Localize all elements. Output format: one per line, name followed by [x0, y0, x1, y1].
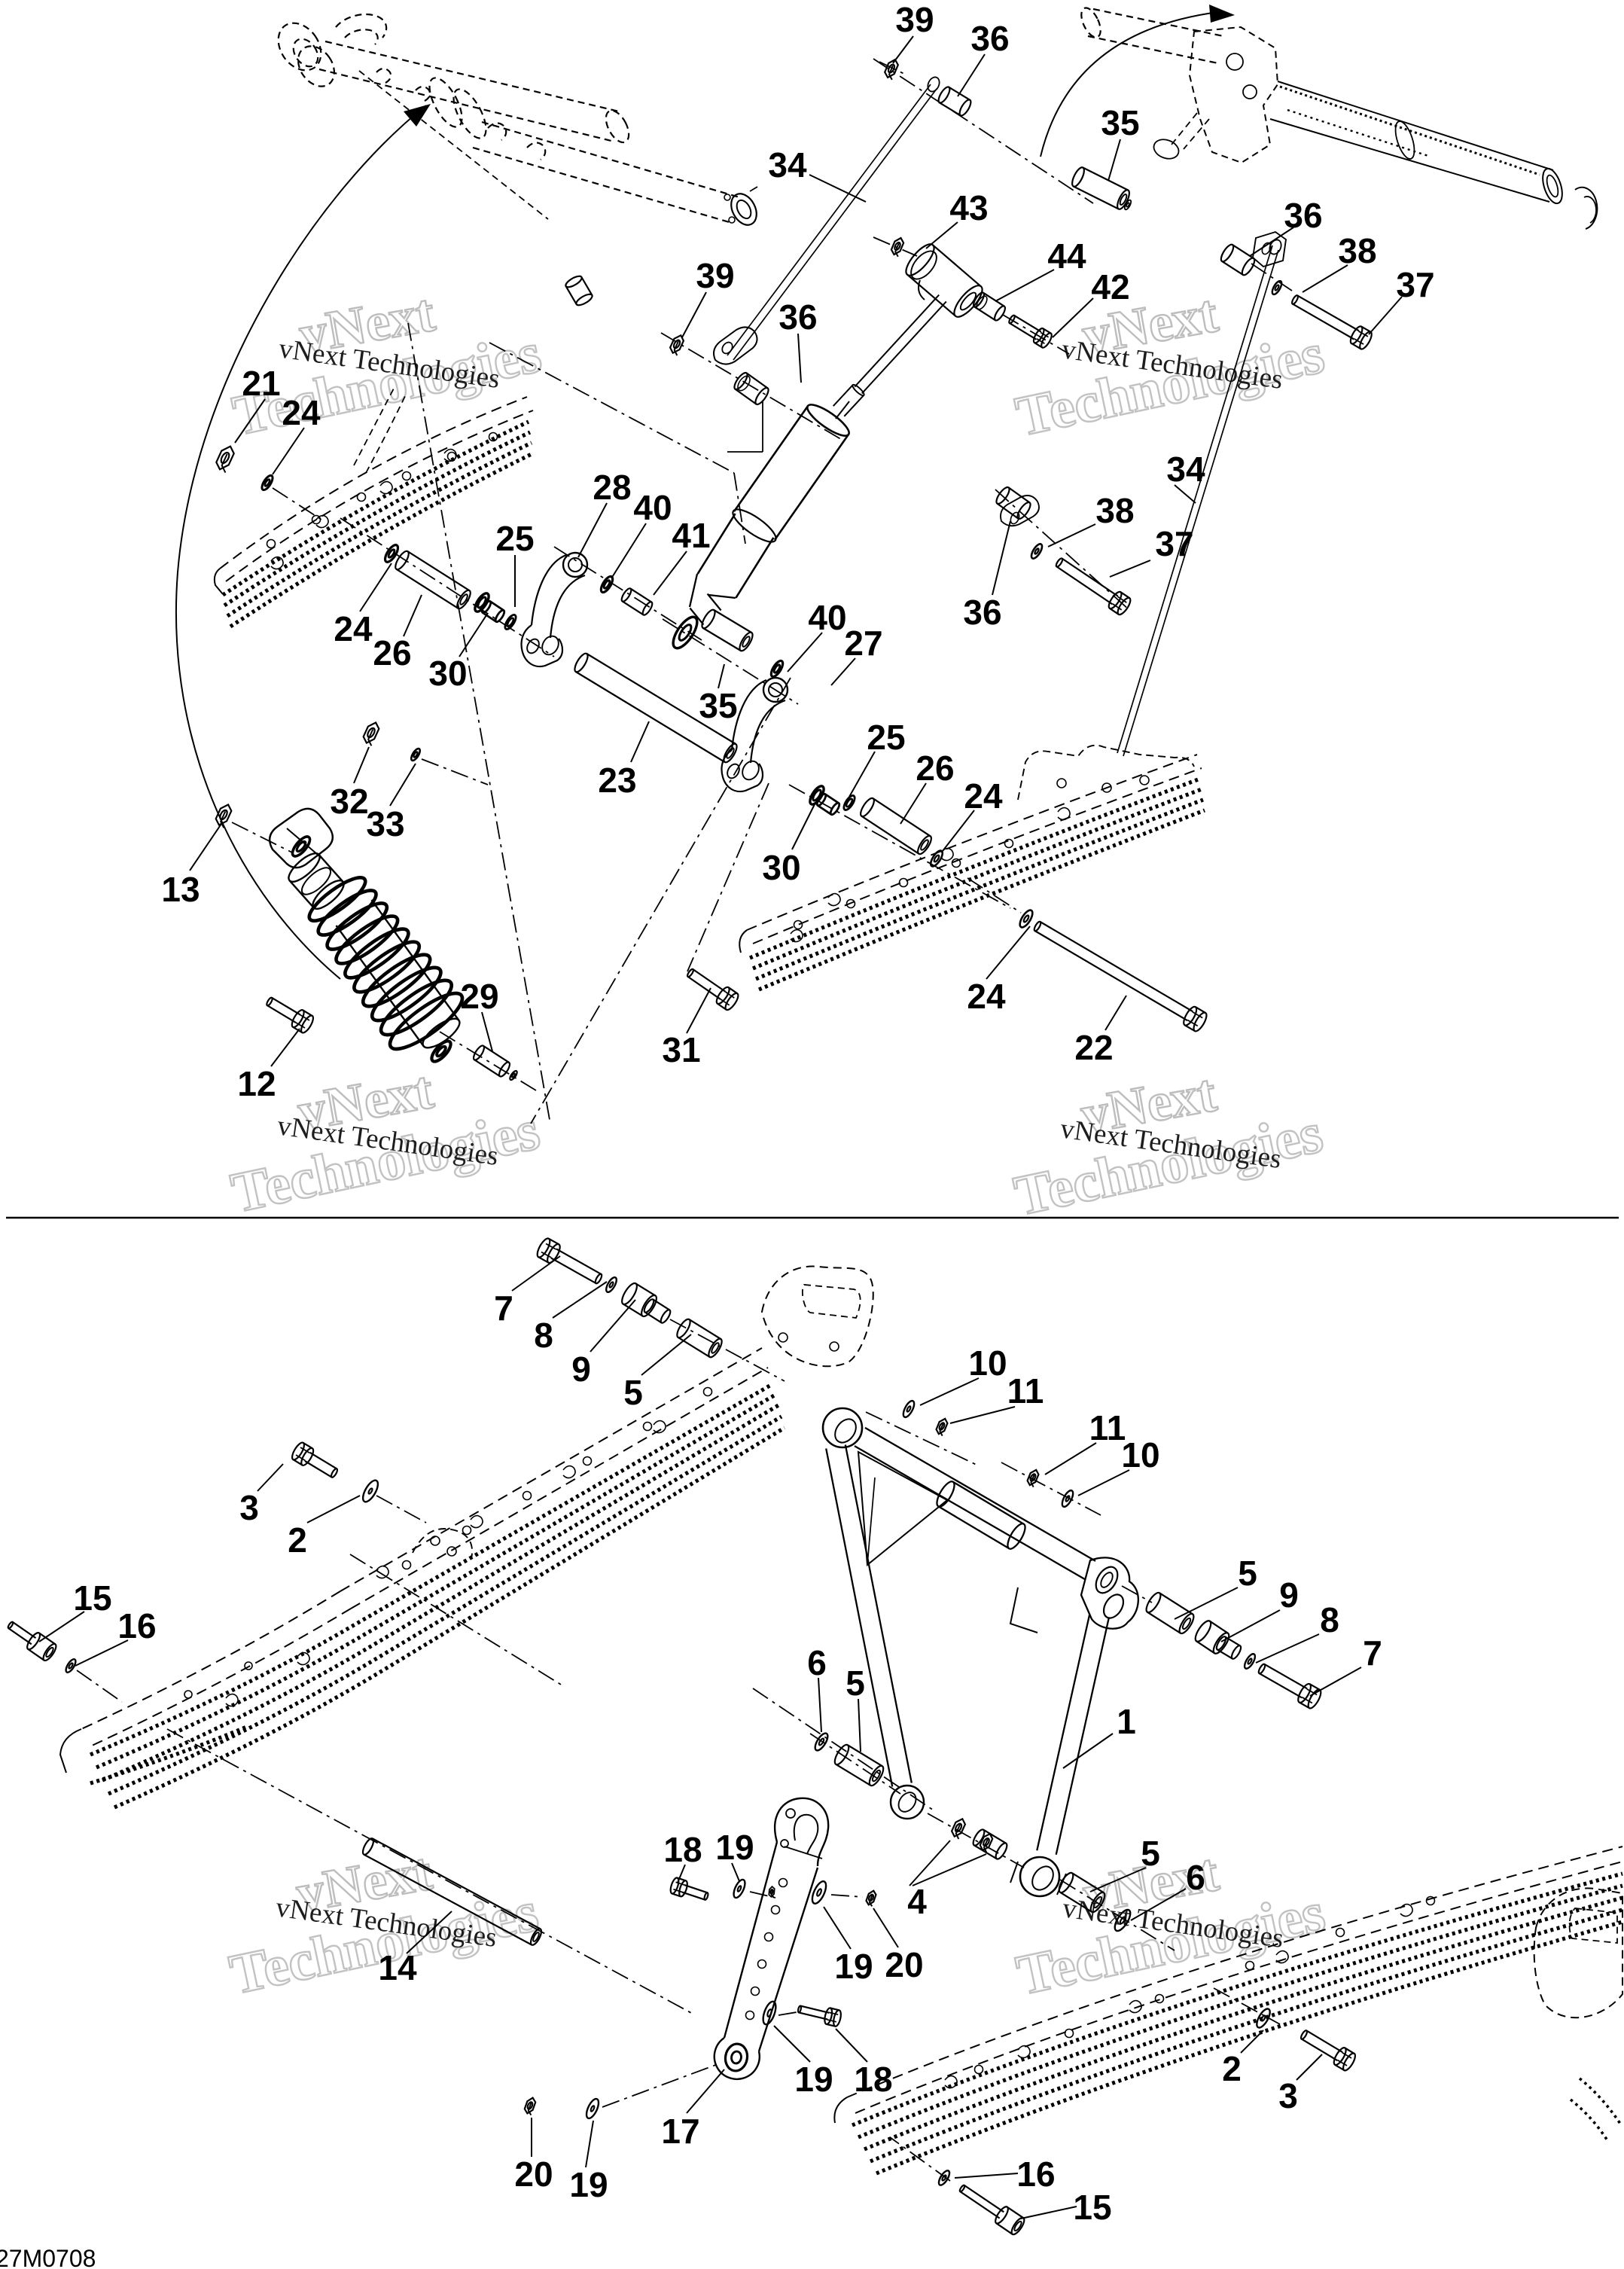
svg-text:5: 5: [1238, 1554, 1257, 1593]
svg-text:17: 17: [661, 2112, 699, 2151]
svg-text:5: 5: [1141, 1834, 1160, 1873]
svg-text:36: 36: [970, 19, 1009, 58]
svg-text:18: 18: [854, 2060, 892, 2099]
svg-text:30: 30: [762, 848, 800, 887]
svg-text:11: 11: [1007, 1371, 1044, 1411]
svg-text:36: 36: [778, 297, 817, 337]
svg-text:9: 9: [1279, 1575, 1299, 1615]
svg-text:9: 9: [571, 1350, 591, 1389]
svg-text:10: 10: [968, 1343, 1007, 1383]
svg-text:26: 26: [373, 633, 411, 672]
svg-text:27M0708: 27M0708: [0, 2245, 96, 2269]
svg-text:12: 12: [237, 1064, 276, 1103]
svg-text:19: 19: [834, 1947, 873, 1986]
svg-text:26: 26: [916, 749, 954, 788]
svg-text:16: 16: [1016, 2155, 1055, 2194]
svg-text:33: 33: [366, 804, 404, 843]
svg-text:7: 7: [494, 1289, 513, 1328]
svg-text:11: 11: [1089, 1408, 1126, 1447]
svg-text:2: 2: [288, 1520, 307, 1560]
svg-text:34: 34: [768, 145, 807, 185]
svg-text:27: 27: [844, 624, 882, 663]
svg-text:25: 25: [867, 718, 905, 757]
svg-text:20: 20: [885, 1945, 923, 1984]
svg-text:35: 35: [699, 686, 737, 725]
svg-text:8: 8: [534, 1316, 553, 1355]
svg-text:39: 39: [895, 0, 934, 39]
svg-text:7: 7: [1363, 1633, 1382, 1673]
svg-text:10: 10: [1121, 1435, 1159, 1475]
svg-text:6: 6: [807, 1643, 827, 1682]
svg-text:2: 2: [1222, 2049, 1242, 2088]
svg-text:19: 19: [794, 2060, 833, 2099]
svg-text:15: 15: [73, 1578, 111, 1618]
svg-text:23: 23: [598, 761, 636, 800]
svg-text:38: 38: [1338, 231, 1376, 270]
svg-text:13: 13: [161, 870, 200, 909]
svg-text:42: 42: [1091, 267, 1129, 306]
svg-text:40: 40: [808, 598, 846, 637]
svg-text:16: 16: [117, 1606, 156, 1645]
svg-text:5: 5: [623, 1373, 643, 1412]
svg-text:36: 36: [963, 593, 1001, 632]
svg-text:15: 15: [1073, 2188, 1111, 2227]
svg-text:19: 19: [569, 2165, 608, 2204]
svg-text:3: 3: [1278, 2076, 1298, 2115]
svg-text:24: 24: [967, 977, 1006, 1016]
svg-text:30: 30: [428, 654, 467, 693]
svg-text:6: 6: [1186, 1858, 1205, 1897]
svg-text:24: 24: [282, 393, 321, 432]
svg-text:38: 38: [1095, 491, 1134, 530]
svg-text:4: 4: [907, 1882, 927, 1921]
svg-text:34: 34: [1166, 450, 1205, 489]
svg-text:19: 19: [715, 1828, 754, 1867]
svg-text:8: 8: [1320, 1600, 1339, 1639]
svg-text:28: 28: [593, 468, 631, 507]
svg-text:14: 14: [378, 1948, 417, 1987]
svg-text:20: 20: [514, 2155, 553, 2194]
svg-text:32: 32: [330, 782, 368, 821]
svg-text:18: 18: [663, 1830, 702, 1869]
svg-text:22: 22: [1074, 1028, 1113, 1067]
svg-text:1: 1: [1117, 1702, 1136, 1741]
svg-text:21: 21: [242, 364, 280, 403]
svg-text:37: 37: [1396, 265, 1434, 304]
svg-text:29: 29: [460, 977, 498, 1016]
svg-text:25: 25: [495, 519, 534, 558]
svg-text:35: 35: [1101, 103, 1139, 142]
svg-text:24: 24: [964, 776, 1003, 816]
svg-text:40: 40: [633, 488, 672, 527]
svg-text:24: 24: [334, 609, 373, 648]
svg-text:39: 39: [696, 256, 734, 295]
svg-text:31: 31: [662, 1030, 700, 1069]
svg-text:3: 3: [239, 1488, 259, 1527]
svg-text:43: 43: [949, 188, 988, 227]
svg-text:37: 37: [1155, 524, 1193, 563]
svg-text:5: 5: [846, 1664, 865, 1703]
svg-text:41: 41: [672, 516, 710, 555]
